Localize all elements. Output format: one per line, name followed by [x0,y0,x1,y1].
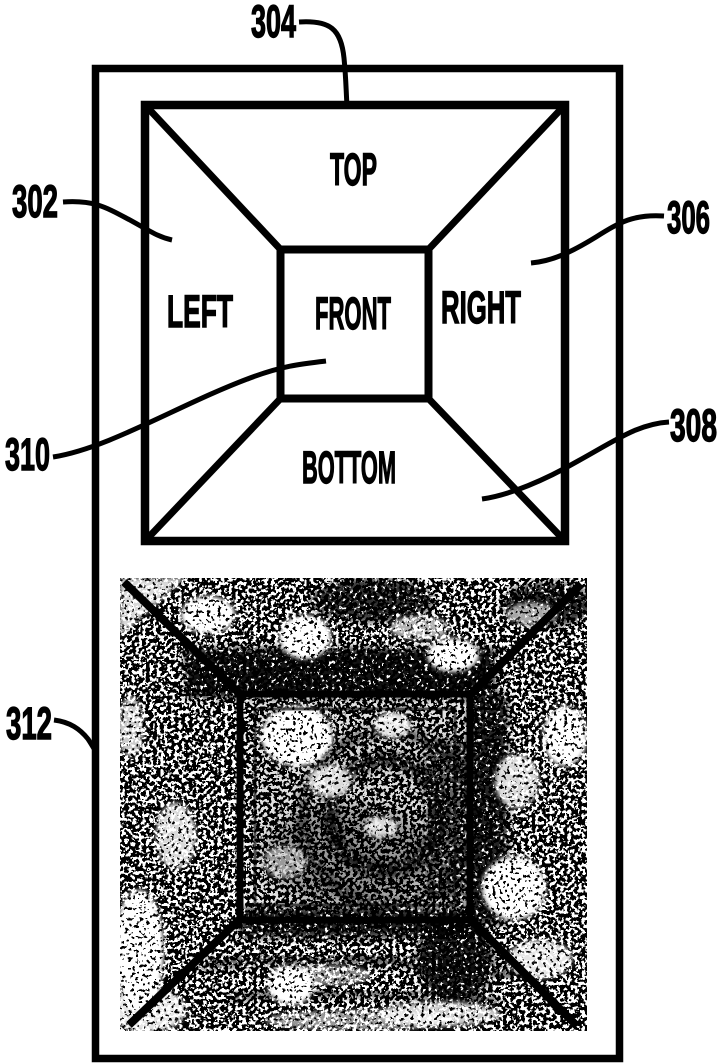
svg-text:BOTTOM: BOTTOM [302,442,396,493]
svg-text:FRONT: FRONT [315,288,391,339]
svg-text:306: 306 [667,192,710,243]
svg-text:312: 312 [6,698,52,749]
svg-text:304: 304 [251,0,296,47]
svg-text:TOP: TOP [330,144,377,195]
svg-text:308: 308 [670,400,717,451]
svg-text:LEFT: LEFT [167,286,233,337]
svg-text:310: 310 [5,429,50,480]
svg-text:302: 302 [12,176,58,227]
svg-text:RIGHT: RIGHT [441,282,521,333]
